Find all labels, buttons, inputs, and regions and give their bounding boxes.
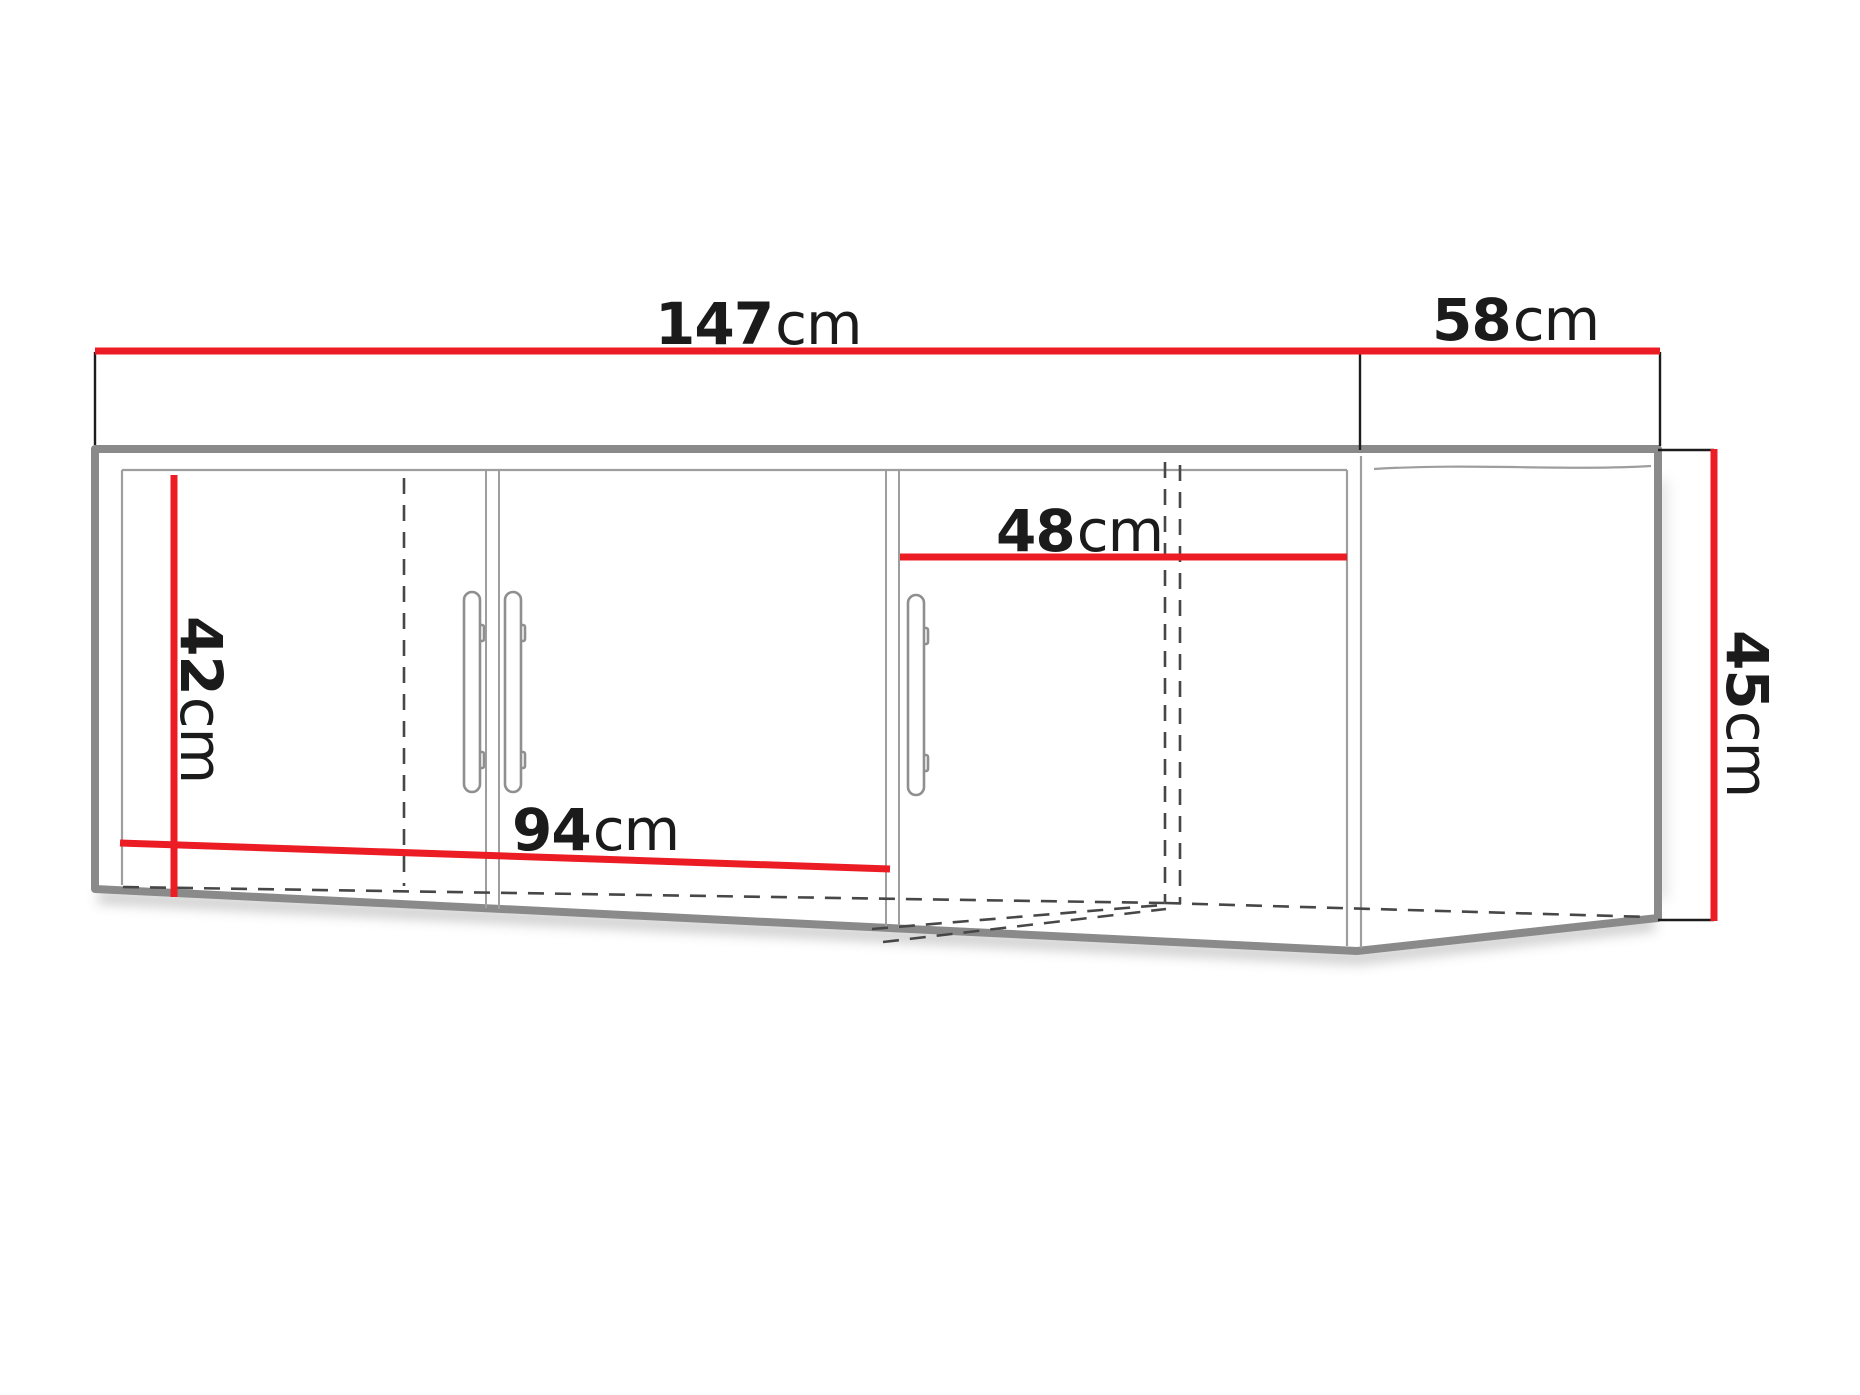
label-height-unit: cm <box>1713 711 1781 797</box>
label-interior-height: 42cm <box>172 616 230 783</box>
label-interior-width-main-value: 94 <box>512 796 591 864</box>
label-interior-width-side: 48cm <box>996 502 1163 560</box>
cabinet-outline <box>95 449 1658 951</box>
label-width-side-value: 58 <box>1432 286 1511 354</box>
handle-right-door <box>908 595 928 795</box>
handle-left-door <box>464 592 484 792</box>
handle-middle-door <box>505 592 525 792</box>
label-interior-height-unit: cm <box>167 697 235 783</box>
label-width-main-value: 147 <box>655 290 773 358</box>
label-interior-width-main-unit: cm <box>593 796 679 864</box>
label-interior-width-main: 94cm <box>512 801 679 859</box>
label-interior-width-side-unit: cm <box>1077 497 1163 565</box>
label-width-side: 58cm <box>1432 291 1599 349</box>
label-interior-height-value: 42 <box>167 616 235 695</box>
label-width-main: 147cm <box>655 295 861 353</box>
label-height-value: 45 <box>1713 630 1781 709</box>
label-interior-width-side-value: 48 <box>996 497 1075 565</box>
label-height: 45cm <box>1718 630 1776 797</box>
furniture-dimension-diagram: 147cm 58cm 48cm 94cm 42cm 45cm <box>0 0 1860 1395</box>
label-width-main-unit: cm <box>775 290 861 358</box>
cabinet-line-drawing <box>0 0 1860 1395</box>
label-width-side-unit: cm <box>1513 286 1599 354</box>
